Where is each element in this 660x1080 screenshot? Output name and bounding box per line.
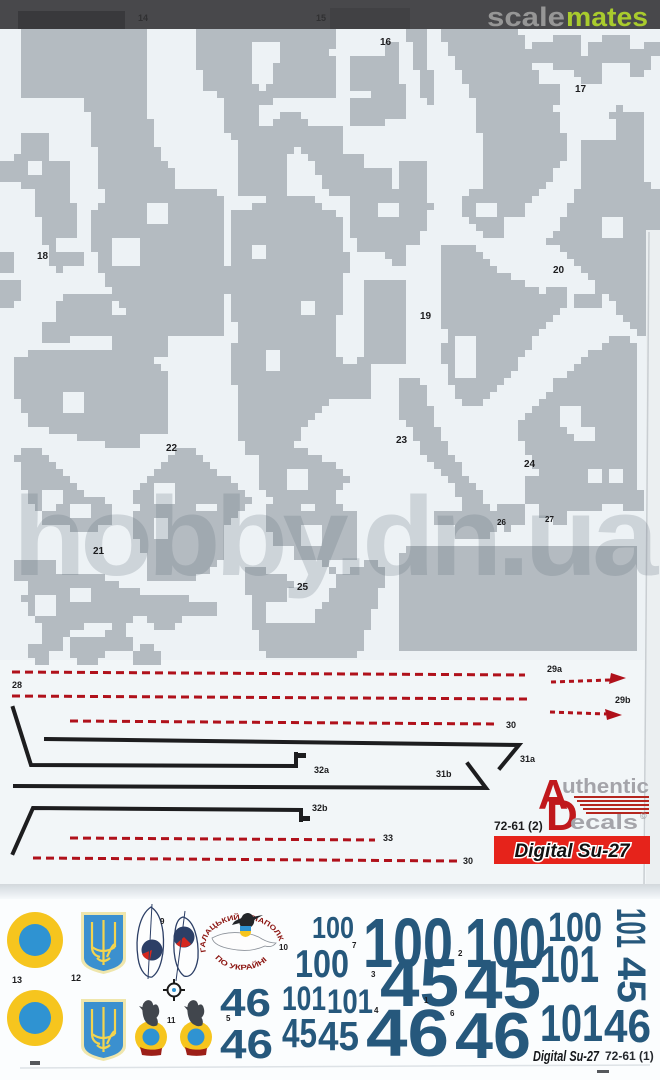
svg-text:Digital Su-27: Digital Su-27 [533,1048,599,1065]
svg-text:22: 22 [166,443,178,454]
svg-text:12: 12 [71,973,81,983]
svg-text:17: 17 [575,84,587,95]
svg-text:45: 45 [318,1013,359,1059]
svg-text:101: 101 [540,936,599,994]
svg-text:27: 27 [545,515,554,524]
svg-text:46: 46 [220,1021,273,1067]
svg-text:45: 45 [282,1010,317,1056]
svg-text:32a: 32a [314,765,330,775]
svg-text:3: 3 [371,970,376,979]
svg-text:45: 45 [609,957,653,1003]
svg-text:10: 10 [279,943,288,952]
svg-text:100: 100 [312,910,354,945]
svg-text:46: 46 [604,1000,651,1052]
svg-text:46: 46 [455,999,531,1072]
svg-text:11: 11 [167,1016,176,1025]
svg-text:16: 16 [380,37,392,48]
svg-text:101: 101 [608,908,654,948]
svg-text:26: 26 [497,518,506,527]
svg-text:72-61 (2): 72-61 (2) [494,819,543,833]
svg-text:31a: 31a [520,754,536,764]
svg-text:14: 14 [138,13,148,23]
svg-text:15: 15 [316,13,326,23]
svg-text:7: 7 [352,941,357,950]
svg-text:hobby.dn.ua: hobby.dn.ua [13,474,659,599]
svg-text:29a: 29a [547,664,563,674]
svg-text:101: 101 [540,995,603,1053]
svg-text:13: 13 [12,975,22,985]
svg-text:24: 24 [524,459,536,470]
svg-text:5: 5 [226,1014,231,1023]
svg-text:2: 2 [458,949,463,958]
svg-text:18: 18 [37,251,49,262]
svg-text:72-61 (1): 72-61 (1) [605,1049,654,1063]
svg-text:4: 4 [374,1006,379,1015]
svg-text:ecals: ecals [570,812,638,834]
svg-text:19: 19 [420,311,432,322]
svg-text:1: 1 [424,996,429,1005]
svg-text:20: 20 [553,265,565,276]
svg-text:9: 9 [160,917,165,926]
svg-text:28: 28 [12,680,22,690]
svg-text:32b: 32b [312,803,328,813]
svg-text:29b: 29b [615,695,631,705]
svg-text:21: 21 [93,546,105,557]
svg-text:uthentic: uthentic [562,776,649,798]
svg-text:30: 30 [506,720,516,730]
svg-text:mates: mates [566,2,648,32]
svg-text:25: 25 [297,582,309,593]
svg-text:30: 30 [463,856,473,866]
svg-text:scale: scale [487,2,565,32]
svg-text:23: 23 [396,435,408,446]
svg-text:Digital Su-27: Digital Su-27 [514,841,631,862]
svg-text:31b: 31b [436,769,452,779]
svg-text:6: 6 [450,1009,455,1018]
svg-text:©: © [640,811,647,821]
svg-text:33: 33 [383,833,393,843]
